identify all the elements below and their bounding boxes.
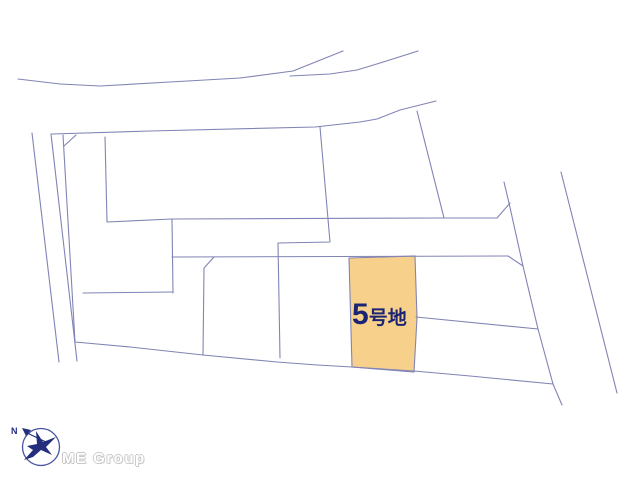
plot-number: 5 [352, 300, 369, 330]
north-arrow-icon [25, 432, 46, 442]
middle-road-top-edge [107, 218, 497, 222]
left-parcel-east-lower [172, 219, 173, 293]
right-road-east-edge [561, 172, 617, 393]
left-parcel-west-edge [63, 135, 75, 342]
middle-road-bottom-edge [172, 256, 508, 257]
compass-north-label: N [11, 426, 18, 436]
left-parcel-south-edge [83, 292, 173, 293]
parcel-lines-layer [18, 51, 617, 405]
plot-map: N [0, 0, 640, 480]
left-parcel-east-upper [105, 137, 107, 222]
company-logo-text: ME Group [62, 450, 146, 467]
row-bottom-boundary [75, 342, 553, 384]
plot-map-canvas: N 5号地 ME Group [0, 0, 640, 480]
flag-lot-divider [278, 127, 330, 358]
compass-logo: N [11, 426, 60, 466]
right-road-west-edge [504, 182, 562, 405]
upper-block-north-edge [52, 101, 436, 134]
bird-icon [24, 431, 56, 460]
row-divider-east-of-5 [416, 317, 538, 329]
plot-label: 5号地 [352, 300, 407, 330]
row-divider-west [203, 257, 214, 355]
corner-cut-northwest [64, 135, 76, 146]
top-road-upper-edge [18, 51, 343, 86]
large-parcel-east-edge [417, 111, 444, 218]
corner-flare-northeast [497, 203, 510, 218]
plot-number-suffix: 号地 [369, 309, 407, 328]
top-road-lower-branch [290, 51, 418, 76]
